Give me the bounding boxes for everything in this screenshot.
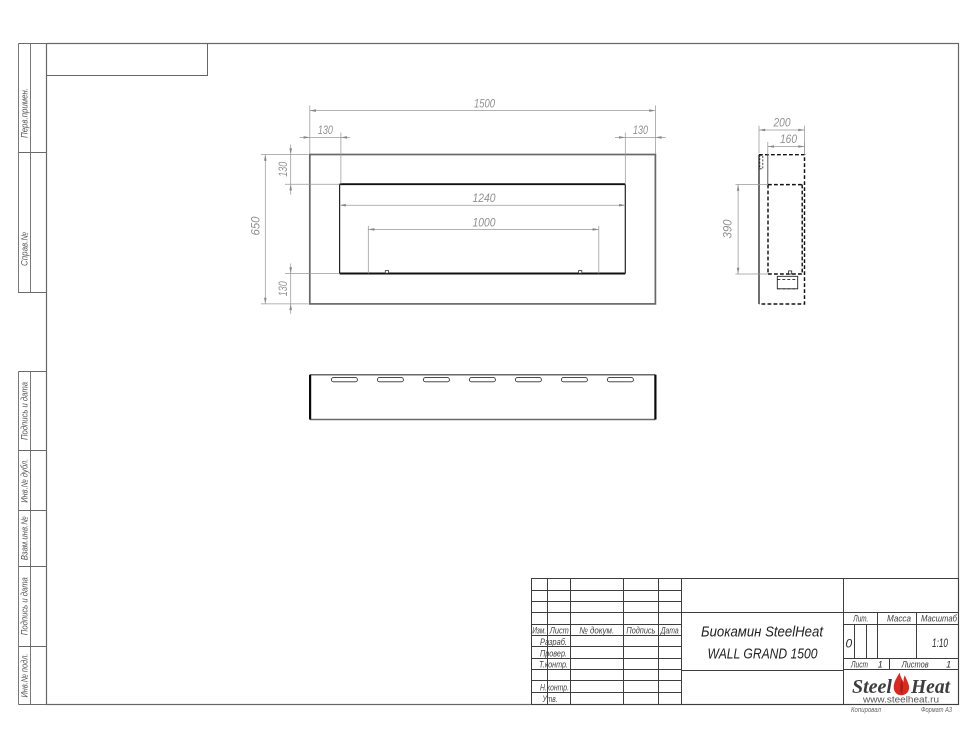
svg-text:1:10: 1:10: [932, 636, 948, 650]
svg-text:160: 160: [780, 132, 797, 146]
svg-text:130: 130: [276, 162, 290, 177]
svg-text:Перв.примен.: Перв.примен.: [20, 88, 30, 138]
svg-text:1240: 1240: [473, 191, 496, 205]
svg-text:130: 130: [318, 123, 333, 137]
svg-text:1: 1: [878, 659, 883, 669]
svg-text:Лист: Лист: [549, 626, 569, 636]
svg-text:Н.контр.: Н.контр.: [540, 682, 569, 692]
svg-text:Копировал: Копировал: [851, 707, 881, 714]
svg-text:WALL GRAND 1500: WALL GRAND 1500: [708, 646, 819, 663]
svg-text:0: 0: [845, 637, 852, 651]
svg-text:№ докум.: № докум.: [579, 626, 614, 636]
svg-text:Подпись и дата: Подпись и дата: [20, 577, 30, 635]
svg-text:Биокамин SteelHeat: Биокамин SteelHeat: [701, 624, 824, 641]
svg-text:1: 1: [946, 659, 951, 669]
svg-text:Подпись и дата: Подпись и дата: [20, 382, 30, 440]
svg-text:1000: 1000: [473, 215, 496, 229]
svg-text:Провер.: Провер.: [540, 648, 567, 658]
svg-text:390: 390: [721, 219, 735, 238]
svg-text:Листов: Листов: [901, 659, 929, 669]
svg-text:Взам.инв.№: Взам.инв.№: [20, 516, 30, 560]
svg-text:Подпись: Подпись: [626, 626, 655, 636]
svg-text:Масштаб: Масштаб: [921, 614, 958, 624]
svg-text:Масса: Масса: [887, 614, 911, 624]
svg-text:200: 200: [773, 116, 791, 130]
svg-text:Формат А3: Формат А3: [921, 707, 952, 714]
svg-text:Дата: Дата: [660, 626, 679, 636]
svg-text:Разраб.: Разраб.: [540, 637, 567, 647]
svg-text:650: 650: [249, 216, 263, 235]
svg-text:Лит.: Лит.: [853, 614, 869, 624]
svg-text:Изм.: Изм.: [532, 626, 546, 636]
svg-text:Инв.№ дубл.: Инв.№ дубл.: [20, 459, 30, 503]
svg-text:Утв.: Утв.: [542, 694, 558, 704]
svg-text:Справ.№: Справ.№: [20, 232, 30, 266]
svg-text:Т.контр.: Т.контр.: [539, 660, 568, 670]
svg-text:www.steelheat.ru: www.steelheat.ru: [862, 695, 939, 706]
svg-text:130: 130: [633, 123, 648, 137]
svg-text:Лист: Лист: [850, 659, 868, 669]
svg-text:1500: 1500: [474, 97, 495, 111]
svg-text:Инв.№ подл.: Инв.№ подл.: [20, 654, 30, 698]
svg-text:130: 130: [276, 281, 290, 296]
